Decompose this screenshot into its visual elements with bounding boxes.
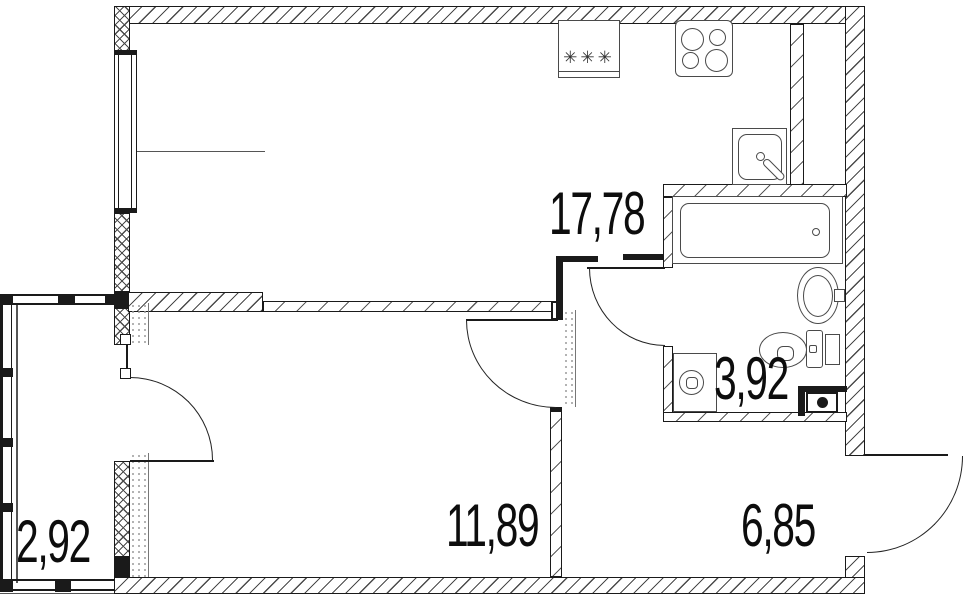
wall-left-segment (114, 213, 130, 293)
bathtub-basin (680, 203, 830, 258)
drain-niche-wall-v (798, 386, 805, 416)
balcony-mullion (58, 294, 75, 305)
bathroom-door-swing (589, 268, 665, 346)
balcony-mullion (0, 438, 13, 447)
washbasin-faucet-icon (834, 289, 845, 302)
balcony-window-glass-line (126, 344, 128, 370)
wall-stub-kitchen-hall-left (560, 256, 598, 262)
balcony-glazing-top-outer (0, 294, 114, 296)
area-label-bedroom: 11,89 (446, 496, 538, 556)
window-axis-line (137, 151, 265, 152)
wall-bedroom-hallway (550, 407, 562, 577)
stove-burner-icon (709, 29, 726, 46)
wall-bottom (114, 577, 865, 594)
washbasin-bowl (803, 275, 833, 317)
refrigerator-line (559, 71, 619, 72)
wall-top (114, 6, 865, 24)
wall-bathroom-bottom (663, 412, 847, 422)
toilet-button (809, 345, 817, 353)
wall-right-upper (845, 6, 865, 456)
wall-left-pier (114, 557, 130, 577)
wall-left-segment (114, 461, 130, 557)
area-label-hallway: 6,85 (741, 496, 815, 556)
entrance-door-swing (867, 456, 963, 553)
balcony-door-swing (130, 377, 213, 460)
balcony-slab-edge (0, 593, 114, 595)
kitchen-window-outer-frame (114, 53, 119, 210)
wall-shaft (790, 24, 804, 185)
refrigerator-star-marks: ✳✳✳ (559, 48, 619, 68)
area-label-bathroom: 3,92 (714, 349, 788, 409)
kitchen-window-inner-frame (131, 53, 137, 210)
wall-stub-vertical (556, 256, 563, 320)
area-label-balcony: 2,92 (16, 512, 90, 572)
wall-furring-strip (130, 303, 149, 345)
drain-dot (817, 397, 828, 408)
balcony-mullion (55, 579, 71, 592)
bathtub-drain (812, 228, 820, 236)
toilet-pipe-box (825, 334, 840, 365)
stove-burner-icon (682, 52, 699, 69)
wall-furring-strip (563, 310, 576, 407)
area-label-kitchen-living: 17,78 (549, 184, 644, 244)
wall-stub-kitchen-hall-right (623, 254, 665, 260)
wall-left-segment (114, 6, 130, 53)
wall-kitchen-bedroom-thin (263, 301, 552, 312)
stove-burner-icon (705, 49, 728, 72)
wall-bathroom-left-lower (663, 346, 673, 422)
kitchen-window-cap-top (114, 50, 137, 55)
balcony-glazing-top-inner (0, 303, 114, 305)
balcony-mullion (105, 294, 114, 305)
refrigerator-icon: ✳✳✳ (558, 20, 620, 78)
wall-furring-strip (130, 453, 149, 577)
balcony-mullion (0, 368, 13, 377)
balcony-mullion (0, 503, 13, 512)
floor-plan: ✳✳✳ 17,78 11,89 6,85 3,92 2,92 (0, 0, 971, 600)
bedroom-door-swing (466, 320, 556, 408)
washing-machine-drum-inner (686, 377, 698, 389)
stove-burner-icon (681, 28, 704, 51)
